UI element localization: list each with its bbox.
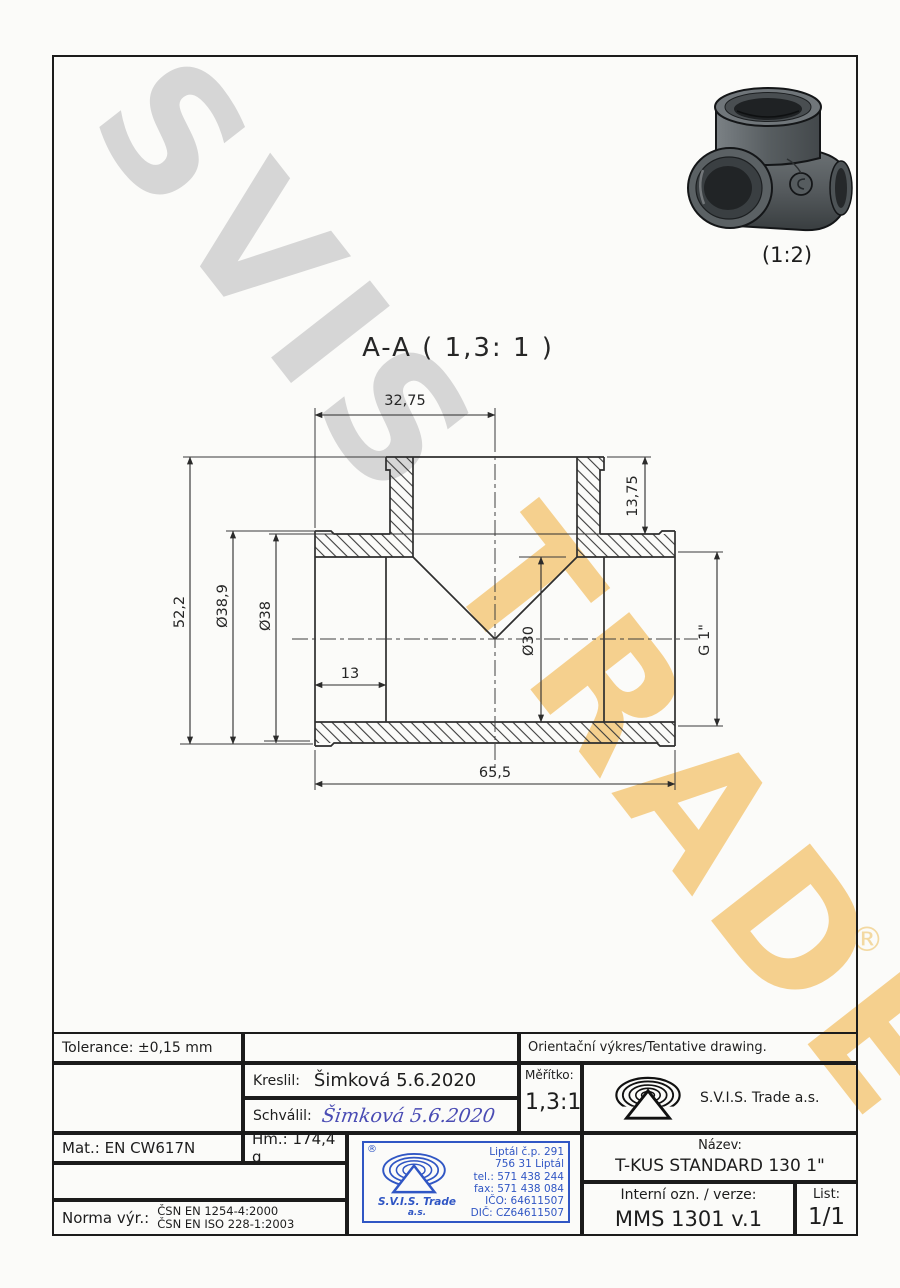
stamp-address-line: DIČ: CZ64611507	[471, 1207, 564, 1219]
tee-body-shape	[688, 88, 852, 230]
tolerance-cell: Tolerance: ±0,15 mm	[52, 1032, 243, 1063]
tee-fitting-pictorial	[683, 66, 861, 248]
nazev-label: Název:	[584, 1138, 856, 1153]
interni-value: MMS 1301 v.1	[584, 1207, 793, 1231]
norma-values: ČSN EN 1254-4:2000 ČSN EN ISO 228-1:2003	[157, 1205, 294, 1231]
material-text: Mat.: EN CW617N	[62, 1139, 195, 1157]
kreslil-label: Kreslil:	[253, 1073, 300, 1089]
company-cell: S.V.I.S. Trade a.s.	[582, 1063, 858, 1133]
stamp-address-line: Liptál č.p. 291	[471, 1146, 564, 1158]
meritko-value: 1,3:1	[525, 1090, 576, 1115]
nazev-value: T-KUS STANDARD 130 1"	[584, 1156, 856, 1176]
stamp-address-line: IČO: 64611507	[471, 1195, 564, 1207]
schvalil-cell: Schválil: Šimková 5.6.2020	[243, 1098, 519, 1133]
weight-text: Hm.: 174,4 g	[252, 1130, 345, 1166]
stamp-cell: ® S.V.I.S. Trade a.s. Liptál č.p. 291 75…	[347, 1133, 582, 1236]
stamp-company-line2: a.s.	[374, 1208, 460, 1218]
schvalil-label: Schválil:	[253, 1108, 312, 1124]
tolerance-text: Tolerance: ±0,15 mm	[62, 1040, 213, 1056]
material-cell: Mat.: EN CW617N	[52, 1133, 243, 1163]
list-label: List:	[797, 1187, 856, 1202]
stamp-address-line: 756 31 Liptál	[471, 1158, 564, 1170]
stamp-address-line: tel.: 571 438 244	[471, 1171, 564, 1183]
stamp-logo-icon	[376, 1151, 452, 1195]
nazev-cell: Název: T-KUS STANDARD 130 1"	[582, 1133, 858, 1182]
empty-cell-3	[52, 1163, 347, 1200]
norma-cell: Norma výr.: ČSN EN 1254-4:2000 ČSN EN IS…	[52, 1200, 347, 1236]
meritko-cell: Měřítko: 1,3:1	[519, 1063, 582, 1133]
company-name: S.V.I.S. Trade a.s.	[700, 1090, 819, 1106]
stamp-company-line1: S.V.I.S. Trade	[374, 1196, 460, 1208]
list-value: 1/1	[797, 1204, 856, 1230]
svis-logo-icon	[612, 1075, 684, 1121]
kreslil-cell: Kreslil: Šimková 5.6.2020	[243, 1063, 519, 1098]
norma-line2: ČSN EN ISO 228-1:2003	[157, 1217, 294, 1231]
meritko-label: Měřítko:	[525, 1068, 576, 1082]
list-cell: List: 1/1	[795, 1182, 858, 1236]
interni-label: Interní ozn. / verze:	[584, 1187, 793, 1203]
norma-line1: ČSN EN 1254-4:2000	[157, 1204, 278, 1218]
pictorial-scale-label: (1:2)	[752, 243, 822, 267]
company-stamp: ® S.V.I.S. Trade a.s. Liptál č.p. 291 75…	[362, 1141, 570, 1223]
stamp-address-line: fax: 571 438 084	[471, 1183, 564, 1195]
stamp-address: Liptál č.p. 291 756 31 Liptál tel.: 571 …	[471, 1146, 564, 1220]
orientation-note-cell: Orientační výkres/Tentative drawing.	[519, 1032, 858, 1063]
kreslil-value: Šimková 5.6.2020	[314, 1070, 476, 1091]
interni-cell: Interní ozn. / verze: MMS 1301 v.1	[582, 1182, 795, 1236]
weight-cell: Hm.: 174,4 g	[243, 1133, 347, 1163]
orientation-note-text: Orientační výkres/Tentative drawing.	[528, 1040, 767, 1055]
drawing-sheet: { "watermark": {"part1": "SVIS", "part2"…	[0, 0, 900, 1288]
empty-cell-2	[52, 1063, 243, 1133]
norma-label: Norma výr.:	[62, 1209, 149, 1227]
schvalil-signature: Šimková 5.6.2020	[320, 1105, 496, 1127]
empty-cell-1	[243, 1032, 519, 1063]
